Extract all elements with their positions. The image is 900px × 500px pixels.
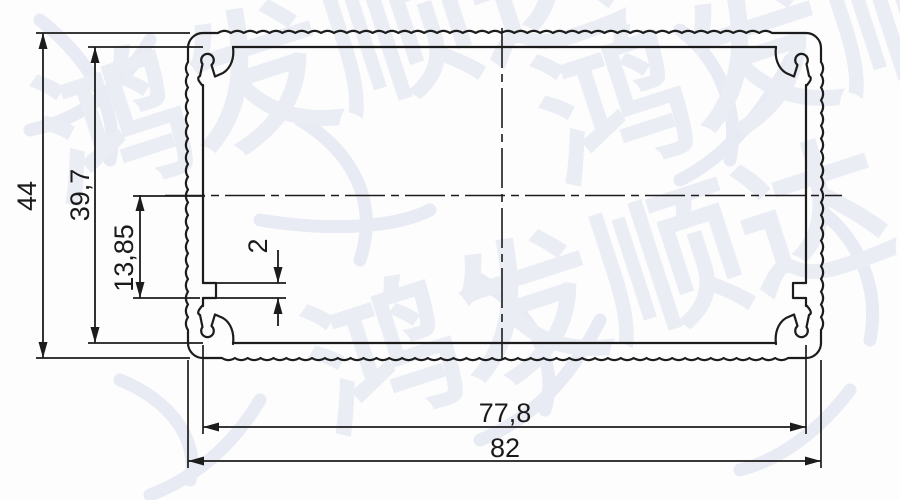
label-outer-height: 44: [12, 181, 42, 211]
screw-boss-bottom-left: [198, 305, 233, 344]
dimension-arrowhead: [203, 423, 219, 432]
label-inner-height: 39,7: [65, 169, 95, 222]
watermark-layer: 鸿发顺达 鸿发顺达 鸿发顺达: [18, 0, 900, 495]
dimension-arrowhead: [91, 327, 100, 343]
drawing-canvas: 鸿发顺达 鸿发顺达 鸿发顺达: [0, 0, 900, 500]
label-inner-width: 77,8: [479, 398, 532, 428]
technical-drawing-svg: 鸿发顺达 鸿发顺达 鸿发顺达: [0, 0, 900, 500]
dimension-arrowhead: [274, 267, 283, 283]
label-slot-offset: 13,85: [109, 224, 139, 292]
dimension-arrowhead: [39, 342, 48, 358]
watermark-stroke: [120, 380, 260, 495]
label-outer-width: 82: [490, 433, 520, 463]
label-slot-width: 2: [243, 238, 273, 253]
dimension-arrowhead: [39, 33, 48, 49]
dimension-arrowhead: [805, 457, 821, 466]
left-pcb-slot-tab: [203, 283, 216, 298]
dimension-arrowhead: [274, 298, 283, 314]
